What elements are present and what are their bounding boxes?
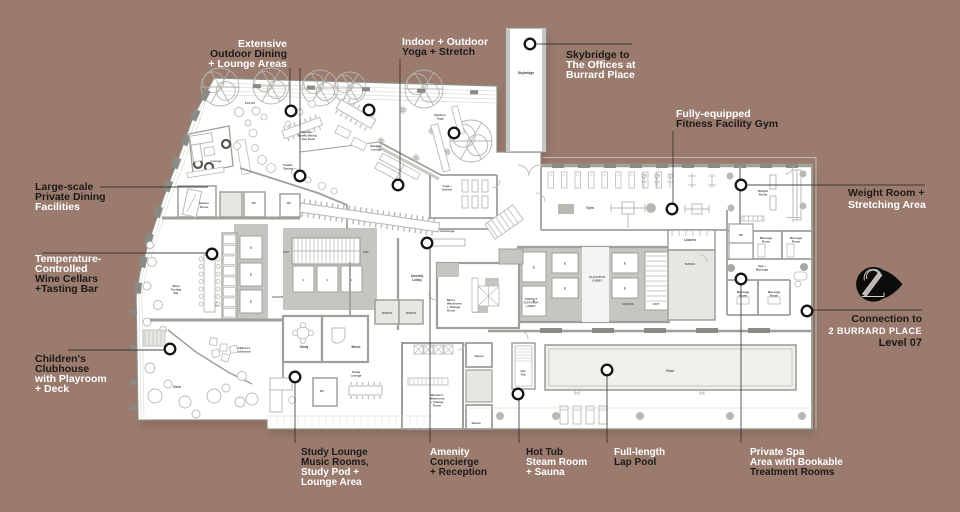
svg-text:Facilities: Facilities [35, 201, 80, 213]
svg-text:Connection to: Connection to [851, 313, 922, 325]
svg-text:Deck: Deck [173, 385, 181, 389]
svg-text:WC: WC [320, 389, 324, 393]
svg-text:HotTub: HotTub [520, 369, 525, 377]
svg-text:OutdoorLounge: OutdoorLounge [370, 144, 383, 152]
svg-text:AmenityLobby: AmenityLobby [411, 274, 424, 282]
svg-text:WeightRoom: WeightRoom [758, 189, 768, 197]
svg-text:E: E [564, 286, 566, 290]
svg-text:Fire Pit: Fire Pit [245, 101, 255, 105]
svg-text:Skybridge: Skybridge [518, 71, 535, 75]
svg-text:LOBBY: LOBBY [592, 279, 603, 283]
svg-text:+ Reception: + Reception [430, 467, 487, 478]
svg-text:E: E [302, 278, 304, 282]
svg-text:Concierge: Concierge [440, 229, 455, 233]
svg-text:SERVICE: SERVICE [622, 302, 634, 306]
svg-text:+ Lounge Areas: + Lounge Areas [208, 58, 287, 70]
svg-text:EXIT: EXIT [363, 250, 369, 254]
svg-text:+ Sauna: + Sauna [526, 467, 565, 478]
svg-text:Study: Study [300, 345, 309, 349]
svg-text:E: E [250, 273, 252, 277]
svg-text:E: E [533, 265, 535, 269]
svg-text:EXIT: EXIT [283, 250, 289, 254]
svg-text:Weight Room +: Weight Room + [848, 187, 925, 199]
svg-text:Lounge Area: Lounge Area [301, 477, 362, 488]
svg-text:Music: Music [351, 345, 360, 349]
svg-text:Stretching Area: Stretching Area [848, 199, 926, 211]
svg-text:EXIT: EXIT [653, 302, 660, 306]
svg-text:Lockers: Lockers [684, 238, 696, 242]
svg-text:2 BURRARD PLACE: 2 BURRARD PLACE [828, 326, 922, 336]
svg-text:WC: WC [252, 201, 256, 205]
svg-text:E: E [564, 261, 566, 265]
svg-text:Sauna: Sauna [471, 421, 480, 425]
svg-text:+Tasting Bar: +Tasting Bar [35, 283, 98, 295]
svg-text:SERVICE: SERVICE [406, 312, 417, 315]
svg-text:Fitness Facility Gym: Fitness Facility Gym [676, 118, 778, 130]
svg-text:Lap Pool: Lap Pool [614, 457, 656, 468]
svg-text:E: E [250, 300, 252, 304]
svg-text:WC: WC [739, 233, 743, 237]
svg-text:Treatment Rooms: Treatment Rooms [750, 467, 835, 478]
svg-text:Level 07: Level 07 [879, 337, 922, 349]
svg-text:Gym: Gym [586, 206, 594, 210]
svg-text:Pool: Pool [666, 369, 673, 373]
svg-text:Lounge: Lounge [211, 159, 222, 163]
svg-text:Burrard Place: Burrard Place [566, 69, 635, 81]
svg-text:Yoga +Stretch: Yoga +Stretch [442, 184, 453, 192]
svg-text:FamilyDining: FamilyDining [283, 163, 293, 171]
svg-text:E: E [326, 278, 328, 282]
svg-text:+ Deck: + Deck [35, 383, 69, 395]
svg-text:E: E [624, 261, 626, 265]
svg-text:E: E [250, 246, 252, 250]
svg-text:SERVICE: SERVICE [685, 263, 696, 266]
svg-text:Room: Room [200, 205, 209, 209]
svg-text:StudyLounge: StudyLounge [351, 370, 362, 378]
svg-text:Steam: Steam [474, 354, 483, 358]
svg-text:Yoga + Stretch: Yoga + Stretch [402, 46, 475, 58]
svg-text:E: E [624, 286, 626, 290]
svg-text:WC: WC [287, 201, 291, 205]
svg-text:SERVICE: SERVICE [382, 312, 393, 315]
